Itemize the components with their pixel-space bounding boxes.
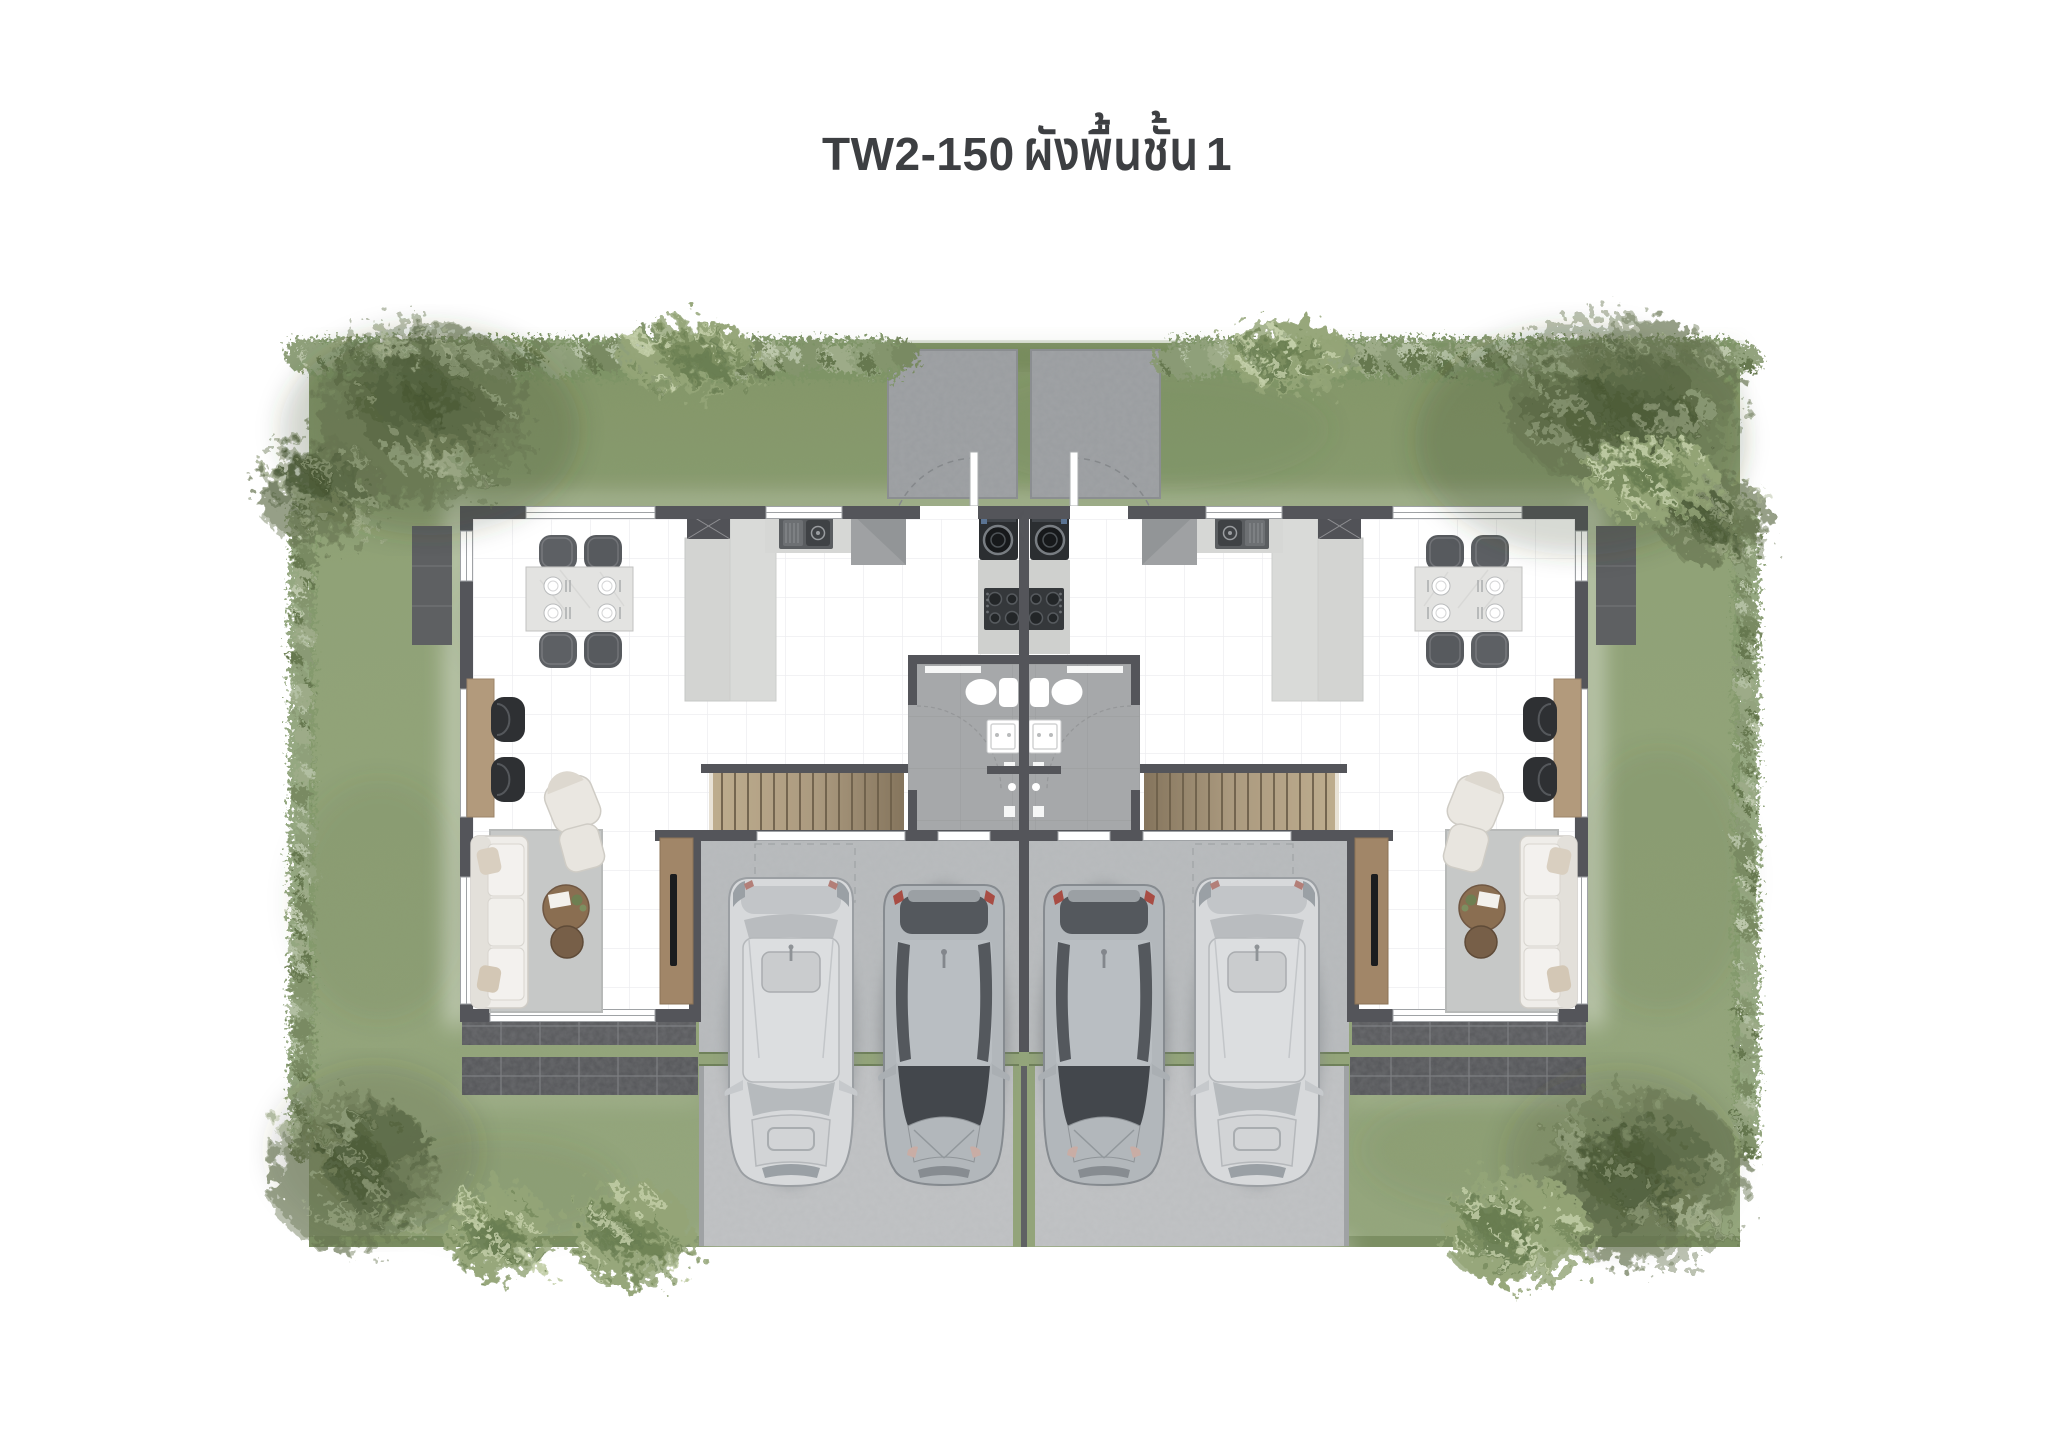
svg-text:TW2-150: TW2-150 [822, 128, 1015, 180]
svg-text:1: 1 [1206, 128, 1232, 180]
